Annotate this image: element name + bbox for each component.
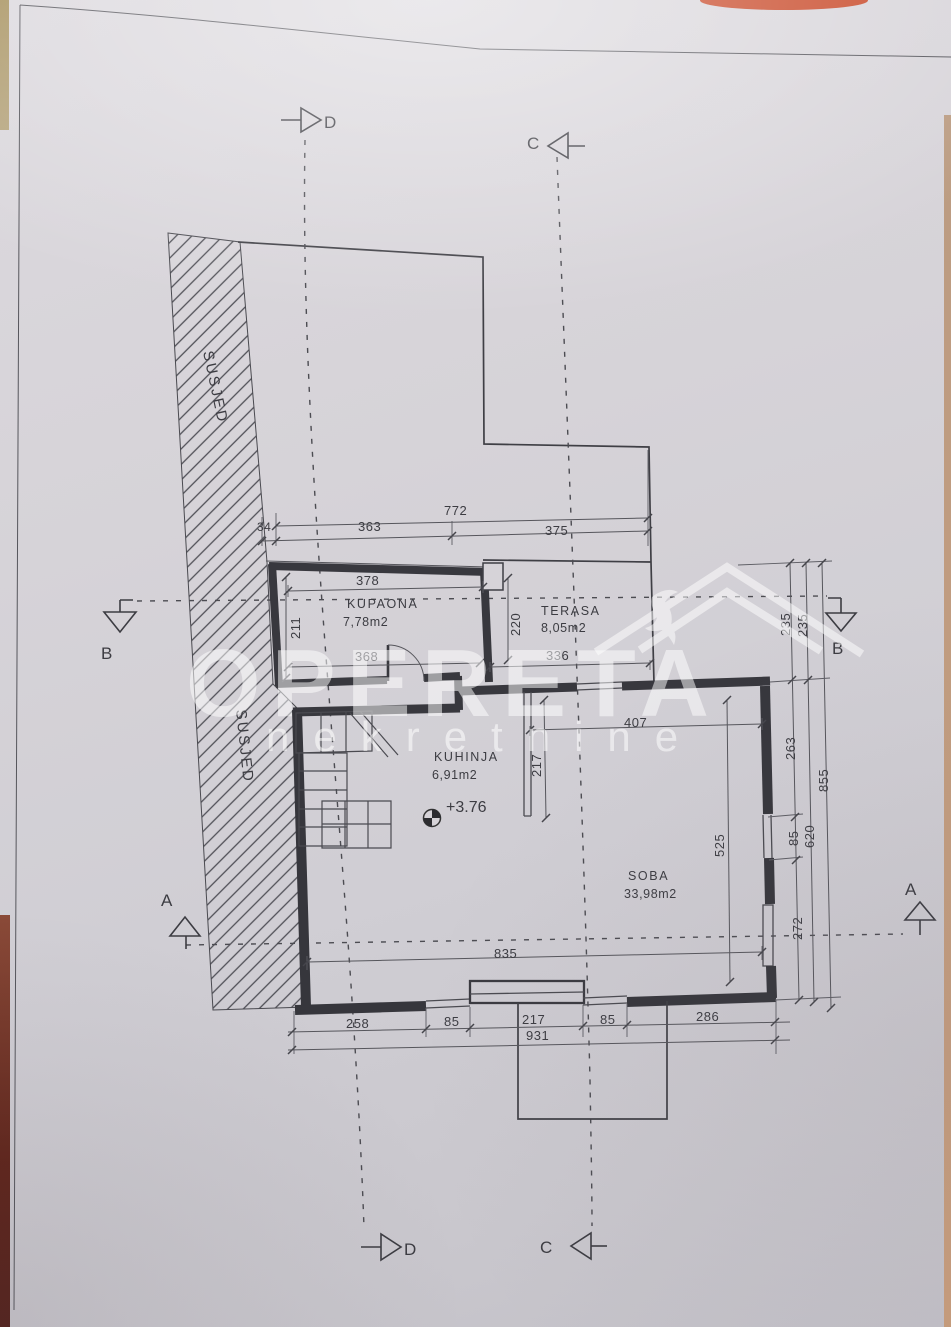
dim-263: 263 bbox=[783, 737, 798, 760]
section-label-left-b: B bbox=[101, 644, 113, 663]
room-label-terasa: TERASA bbox=[541, 604, 601, 618]
dim-368: 368 bbox=[355, 649, 378, 664]
section-marker-left-b: B bbox=[101, 600, 136, 663]
section-marker-bottom-d: D bbox=[361, 1234, 417, 1260]
room-area-soba: 33,98m2 bbox=[624, 887, 677, 901]
dim-375: 375 bbox=[545, 523, 568, 538]
section-arrow-icon bbox=[905, 902, 935, 920]
section-label-top-c: C bbox=[527, 134, 540, 153]
section-marker-right-a: A bbox=[905, 880, 935, 935]
dim-85a: 85 bbox=[444, 1014, 459, 1029]
floor-plan-drawing: SUSJED SUSJED bbox=[0, 0, 951, 1327]
section-arrow-icon bbox=[381, 1234, 401, 1260]
room-label-soba: SOBA bbox=[628, 869, 669, 883]
room-label-kupaona: KUPAONA bbox=[347, 597, 418, 611]
dimension-ticks bbox=[258, 514, 835, 1054]
dim-855: 855 bbox=[816, 769, 831, 792]
section-marker-left-a: A bbox=[161, 891, 200, 949]
dim-286: 286 bbox=[696, 1009, 719, 1024]
section-marker-top-d: D bbox=[281, 108, 337, 132]
section-arrow-icon bbox=[170, 917, 200, 936]
staircase bbox=[296, 711, 398, 848]
section-arrow-icon bbox=[548, 133, 568, 158]
room-area-terasa: 8,05m2 bbox=[541, 621, 586, 635]
dim-34: 34 bbox=[257, 520, 271, 534]
dim-336: 336 bbox=[546, 648, 569, 663]
scanned-floor-plan-photo: SUSJED SUSJED bbox=[0, 0, 951, 1327]
dim-220: 220 bbox=[508, 613, 523, 636]
section-arrow-icon bbox=[301, 108, 321, 132]
dim-85-right: 85 bbox=[786, 831, 801, 846]
dim-407: 407 bbox=[624, 715, 647, 730]
section-label-top-d: D bbox=[324, 113, 337, 132]
section-marker-top-c: C bbox=[527, 133, 585, 158]
dim-272: 272 bbox=[790, 917, 805, 940]
dim-525: 525 bbox=[712, 834, 727, 857]
section-label-left-a: A bbox=[161, 891, 173, 910]
elevation-value: +3.76 bbox=[446, 799, 487, 816]
dim-258: 258 bbox=[346, 1016, 369, 1031]
section-label-bottom-c: C bbox=[540, 1238, 553, 1257]
dim-211: 211 bbox=[288, 617, 303, 639]
room-area-kuhinja: 6,91m2 bbox=[432, 768, 477, 782]
dim-620: 620 bbox=[802, 825, 817, 848]
pillar bbox=[483, 563, 503, 590]
room-label-kuhinja: KUHINJA bbox=[434, 750, 499, 764]
dim-931: 931 bbox=[526, 1028, 549, 1043]
dim-217-bottom: 217 bbox=[522, 1012, 545, 1027]
dim-378: 378 bbox=[356, 573, 379, 588]
section-marker-bottom-c: C bbox=[540, 1233, 607, 1259]
bathroom-door bbox=[388, 645, 424, 681]
elevation-marker: +3.76 bbox=[424, 799, 487, 827]
dim-85b: 85 bbox=[600, 1012, 615, 1027]
section-arrow-icon bbox=[104, 612, 136, 632]
dim-835: 835 bbox=[494, 946, 517, 961]
section-arrow-icon bbox=[826, 613, 856, 631]
dim-363: 363 bbox=[358, 519, 381, 534]
room-area-kupaona: 7,78m2 bbox=[343, 615, 388, 629]
dim-217: 217 bbox=[529, 754, 544, 777]
dim-772: 772 bbox=[444, 503, 467, 518]
section-label-bottom-d: D bbox=[404, 1240, 417, 1259]
section-arrow-icon bbox=[571, 1233, 591, 1259]
drawing-frame-line bbox=[14, 5, 951, 1310]
dimension-labels: 772 34 363 375 378 211 368 220 336 407 2… bbox=[257, 503, 831, 1043]
section-label-right-a: A bbox=[905, 880, 917, 899]
